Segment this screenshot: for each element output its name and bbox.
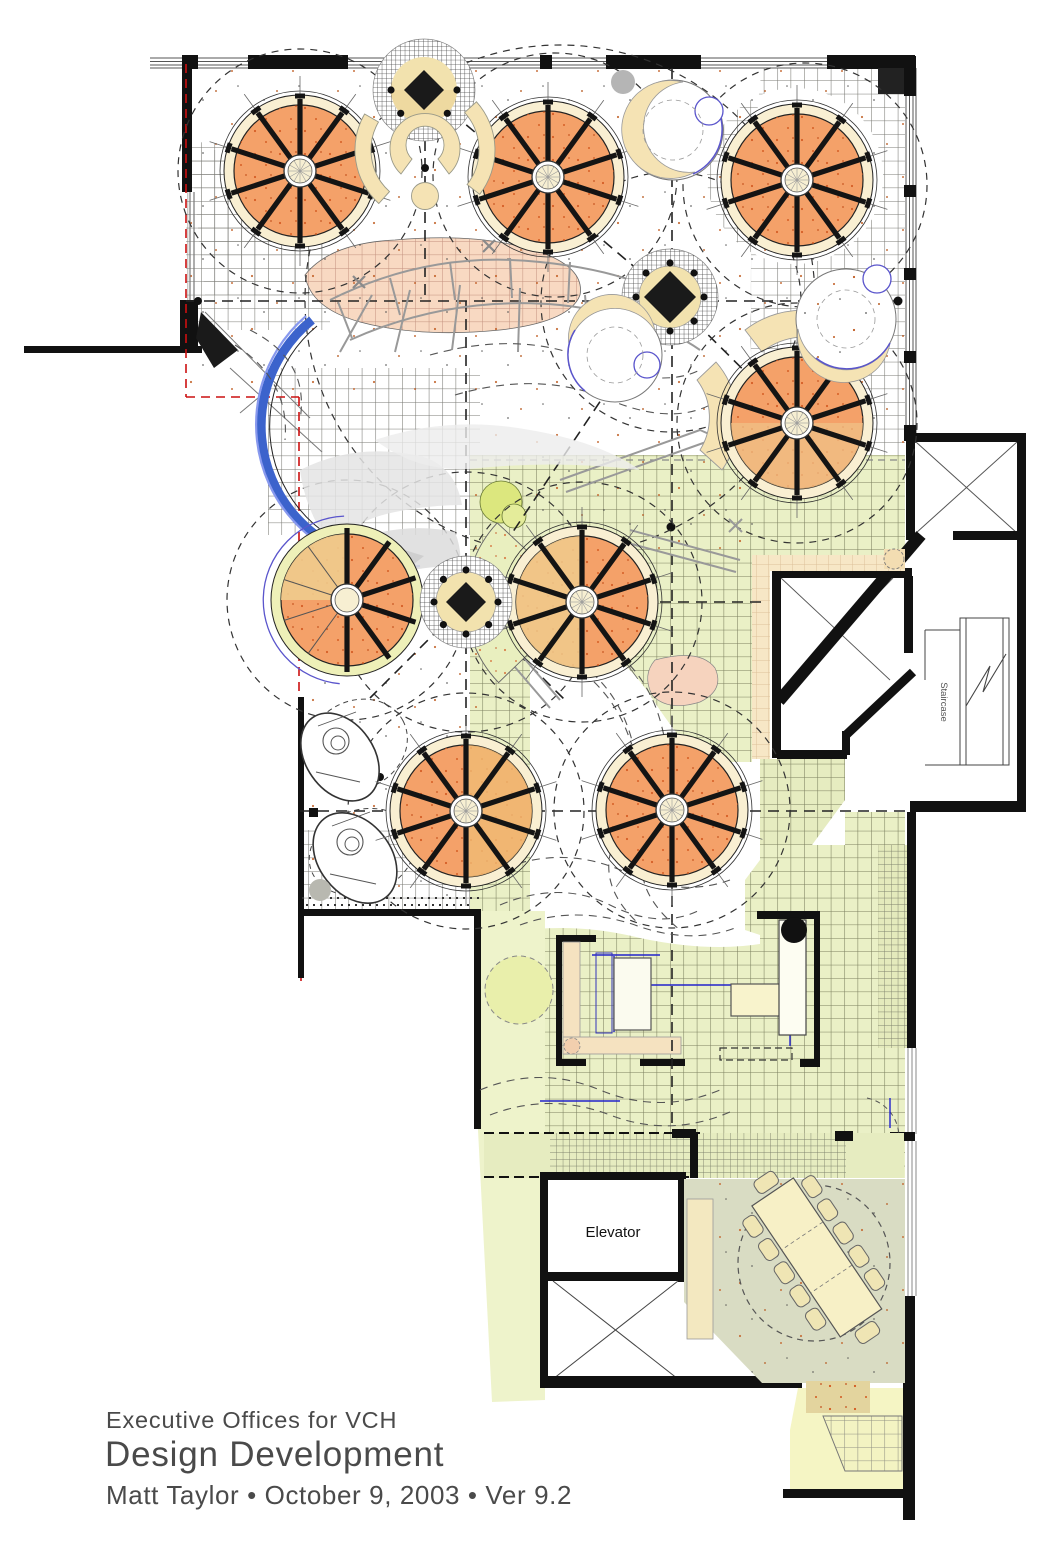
svg-text:Staircase: Staircase (938, 682, 949, 722)
svg-text:Design Development: Design Development (105, 1435, 444, 1474)
svg-text:Matt Taylor • October 9, 200: Matt Taylor • October 9, 2003 • Ver 9.2 (106, 1480, 572, 1510)
svg-text:Executive Offices for VCH: Executive Offices for VCH (106, 1407, 397, 1433)
svg-text:Elevator: Elevator (585, 1224, 640, 1241)
